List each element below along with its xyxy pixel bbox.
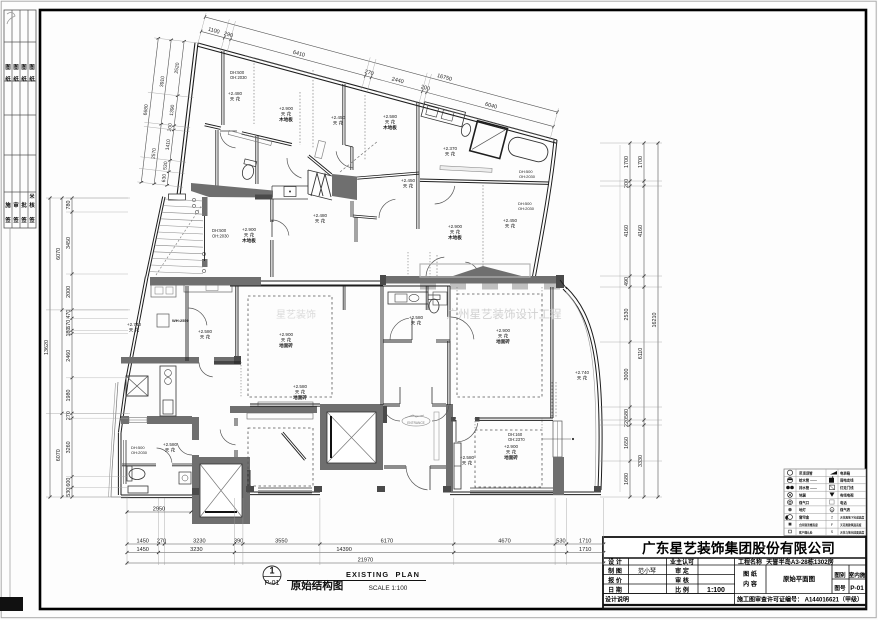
- svg-text:天 花: 天 花: [577, 374, 588, 381]
- svg-text:天 花: 天 花: [411, 319, 422, 326]
- svg-text:业主认可: 业主认可: [670, 558, 694, 566]
- svg-text:弱电走线: 弱电走线: [840, 478, 854, 483]
- svg-text:范小琴: 范小琴: [638, 567, 656, 575]
- svg-text:+2.370: +2.370: [443, 146, 458, 151]
- svg-text:木地板: 木地板: [382, 124, 397, 131]
- svg-text:纸: 纸: [13, 75, 19, 83]
- svg-text:木地板: 木地板: [241, 237, 256, 244]
- svg-text:600: 600: [66, 478, 72, 487]
- svg-text:2: 2: [831, 515, 833, 519]
- svg-text:+2.900: +2.900: [504, 444, 519, 449]
- svg-text:6070: 6070: [56, 449, 62, 461]
- svg-text:天 花: 天 花: [230, 95, 241, 102]
- svg-text:天花离建筑面高度: 天花离建筑面高度: [840, 523, 862, 527]
- svg-text:天花离地下完成高度: 天花离地下完成高度: [840, 516, 864, 520]
- svg-text:P-01: P-01: [265, 580, 280, 587]
- svg-text:530: 530: [66, 488, 72, 497]
- svg-text:制 图: 制 图: [608, 567, 622, 575]
- svg-text:天 花: 天 花: [403, 182, 414, 189]
- svg-text:客户确认处: 客户确认处: [799, 530, 813, 534]
- svg-text:纸: 纸: [29, 75, 35, 83]
- svg-text:天花与地完成面高度: 天花与地完成面高度: [840, 530, 864, 534]
- svg-text:P-01: P-01: [850, 585, 864, 592]
- svg-text:1450: 1450: [136, 539, 148, 545]
- svg-text:+2.900: +2.900: [279, 106, 294, 111]
- svg-text:原始平面图: 原始平面图: [783, 574, 815, 583]
- svg-text:施工图审查许可证编号： A144016621（甲级）: 施工图审查许可证编号： A144016621（甲级）: [737, 596, 863, 604]
- svg-text:签: 签: [4, 216, 11, 224]
- svg-text:电话: 电话: [840, 500, 847, 505]
- svg-text:+2.580: +2.580: [198, 329, 213, 334]
- svg-text:ENTRANCE: ENTRANCE: [407, 421, 425, 425]
- svg-text:电表箱: 电表箱: [840, 470, 851, 475]
- svg-text:天 花: 天 花: [445, 150, 456, 157]
- svg-text:OH:2030: OH:2030: [518, 206, 535, 211]
- svg-text:21970: 21970: [358, 558, 374, 564]
- svg-text:窗帘盒: 窗帘盒: [799, 515, 810, 520]
- svg-text:6070: 6070: [56, 248, 62, 260]
- svg-text:施: 施: [5, 201, 11, 209]
- svg-text:天 花: 天 花: [333, 119, 344, 126]
- svg-text:670: 670: [66, 320, 72, 329]
- svg-text:1680: 1680: [624, 473, 630, 485]
- svg-text:270: 270: [157, 539, 166, 545]
- svg-text:审 定: 审 定: [675, 567, 689, 575]
- svg-text:530: 530: [556, 539, 565, 545]
- svg-text:270: 270: [66, 411, 72, 420]
- svg-text:4670: 4670: [498, 539, 510, 545]
- svg-text:比 例: 比 例: [675, 586, 689, 594]
- svg-text:1: 1: [269, 566, 274, 576]
- svg-text:天 花: 天 花: [505, 222, 516, 229]
- svg-text:1650: 1650: [624, 437, 630, 449]
- svg-text:有线电视: 有线电视: [840, 493, 854, 498]
- svg-text:煤气表: 煤气表: [840, 507, 851, 512]
- svg-text:广州星艺装饰设计工程: 广州星艺装饰设计工程: [447, 307, 562, 321]
- svg-text:3000: 3000: [624, 369, 630, 381]
- svg-text:4160: 4160: [624, 225, 630, 237]
- svg-text:6110: 6110: [638, 348, 644, 360]
- svg-text:图别: 图别: [834, 571, 846, 579]
- svg-text:+2.580: +2.580: [383, 114, 398, 119]
- svg-text:470: 470: [66, 310, 72, 319]
- svg-text:+2.580: +2.580: [163, 442, 178, 447]
- svg-text:220: 220: [624, 418, 630, 427]
- svg-text:+2.480: +2.480: [228, 91, 243, 96]
- svg-text:星艺装饰: 星艺装饰: [276, 308, 316, 321]
- svg-text:4160: 4160: [638, 225, 644, 237]
- svg-text:给水管 ——: 给水管 ——: [799, 478, 818, 483]
- svg-text:灯走门线: 灯走门线: [840, 485, 854, 490]
- svg-text:390: 390: [234, 539, 243, 545]
- svg-text:木地板: 木地板: [278, 116, 293, 123]
- svg-text:OH:2030: OH:2030: [230, 75, 247, 80]
- svg-text:煤气口: 煤气口: [799, 500, 810, 505]
- svg-text:地面砖: 地面砖: [496, 338, 510, 345]
- svg-text:广东星艺装饰集团股份有限公司: 广东星艺装饰集团股份有限公司: [642, 540, 835, 556]
- svg-text:天 花: 天 花: [200, 333, 211, 340]
- svg-text:1980: 1980: [66, 390, 72, 402]
- svg-text:OH:2030: OH:2030: [131, 450, 148, 455]
- svg-text:木地板: 木地板: [447, 234, 462, 241]
- svg-text:图: 图: [29, 63, 35, 71]
- svg-text:WH:2550: WH:2550: [172, 318, 190, 323]
- svg-text:地面砖: 地面砖: [293, 394, 307, 401]
- svg-text:图 纸: 图 纸: [743, 570, 757, 578]
- svg-text:+2.900: +2.900: [448, 224, 463, 229]
- svg-text:1700: 1700: [638, 156, 644, 168]
- svg-text:780: 780: [66, 201, 72, 210]
- svg-text:DH:500: DH:500: [212, 228, 227, 233]
- svg-text:天 花: 天 花: [315, 217, 326, 224]
- svg-text:SCALE 1:100: SCALE 1:100: [369, 585, 408, 592]
- svg-text:3230: 3230: [190, 547, 202, 553]
- svg-text:审: 审: [13, 201, 19, 209]
- svg-text:OH:2030: OH:2030: [212, 234, 229, 239]
- svg-text:+2.740: +2.740: [127, 322, 142, 327]
- svg-text:EXISTING PLAN: EXISTING PLAN: [346, 570, 420, 579]
- svg-text:天 花: 天 花: [129, 326, 140, 333]
- svg-text:+2.900: +2.900: [496, 328, 511, 333]
- svg-text:室内施: 室内施: [849, 571, 866, 579]
- svg-text:14390: 14390: [336, 547, 352, 553]
- svg-text:报 价: 报 价: [608, 577, 623, 585]
- svg-text:图: 图: [13, 63, 19, 71]
- svg-text:核: 核: [29, 201, 35, 209]
- svg-text:1450: 1450: [136, 547, 148, 553]
- svg-text:吊顶顶管: 吊顶顶管: [799, 470, 813, 475]
- svg-text:200: 200: [624, 179, 630, 188]
- svg-text:排水管 ——: 排水管 ——: [799, 485, 818, 490]
- svg-text:+2.740: +2.740: [575, 370, 590, 375]
- svg-text:设计说明: 设计说明: [605, 596, 629, 604]
- svg-text:签: 签: [20, 216, 27, 224]
- svg-text:地灯: 地灯: [799, 507, 806, 512]
- svg-text:天誉半岛A3-28栋1302房: 天誉半岛A3-28栋1302房: [766, 558, 834, 566]
- svg-text:批: 批: [21, 201, 27, 209]
- svg-text:内 容: 内 容: [743, 580, 757, 588]
- svg-text:签: 签: [28, 216, 35, 224]
- svg-text:13620: 13620: [44, 340, 50, 355]
- svg-text:+2.900: +2.900: [279, 332, 294, 337]
- svg-text:3450: 3450: [66, 237, 72, 249]
- svg-text:日 期: 日 期: [608, 586, 622, 594]
- svg-text:地面砖: 地面砖: [504, 454, 518, 461]
- svg-text:OH:2370: OH:2370: [508, 437, 525, 442]
- svg-text:工程名称: 工程名称: [738, 558, 762, 566]
- svg-text:2000: 2000: [66, 286, 72, 298]
- svg-text:530: 530: [162, 161, 169, 170]
- svg-text:200: 200: [167, 123, 174, 132]
- svg-text:1700: 1700: [624, 156, 630, 168]
- svg-text:490: 490: [624, 277, 630, 286]
- svg-text:+2.580: +2.580: [460, 455, 475, 460]
- svg-text:+2.900: +2.900: [242, 227, 257, 232]
- svg-text:+2.580: +2.580: [409, 315, 424, 320]
- svg-text:16210: 16210: [652, 313, 658, 328]
- svg-text:设 计: 设 计: [608, 558, 622, 566]
- svg-text:3550: 3550: [275, 539, 287, 545]
- svg-text:580: 580: [624, 409, 630, 418]
- svg-text:+2.450: +2.450: [331, 115, 346, 120]
- svg-text:天 花: 天 花: [462, 459, 473, 466]
- svg-text:纸: 纸: [21, 75, 27, 83]
- svg-text:+2.450: +2.450: [401, 178, 416, 183]
- svg-text:+2.580: +2.580: [293, 384, 308, 389]
- svg-text:6170: 6170: [381, 539, 393, 545]
- svg-text:天 花: 天 花: [165, 446, 176, 453]
- svg-text:合同现浇楼高度: 合同现浇楼高度: [799, 523, 818, 527]
- svg-text:审 核: 审 核: [675, 577, 689, 585]
- svg-text:180: 180: [66, 328, 72, 337]
- svg-text:2530: 2530: [624, 309, 630, 321]
- svg-text:图: 图: [21, 63, 27, 71]
- svg-text:2460: 2460: [66, 350, 72, 362]
- svg-text:图号: 图号: [834, 584, 846, 592]
- svg-text:1710: 1710: [579, 547, 591, 553]
- svg-text:签: 签: [12, 216, 19, 224]
- svg-text:3260: 3260: [66, 441, 72, 453]
- svg-text:630: 630: [161, 173, 168, 182]
- svg-text:+2.450: +2.450: [503, 218, 518, 223]
- svg-text:图: 图: [5, 63, 11, 71]
- svg-text:2950: 2950: [153, 507, 165, 513]
- svg-text:纸: 纸: [5, 75, 11, 83]
- svg-text:1:100: 1:100: [707, 587, 725, 594]
- svg-text:+2.480: +2.480: [313, 213, 328, 218]
- svg-text:OH:2030: OH:2030: [519, 174, 536, 179]
- svg-text:3230: 3230: [193, 539, 205, 545]
- svg-text:地漏: 地漏: [799, 493, 806, 498]
- svg-text:地面砖: 地面砖: [279, 342, 293, 349]
- svg-text:1710: 1710: [579, 539, 591, 545]
